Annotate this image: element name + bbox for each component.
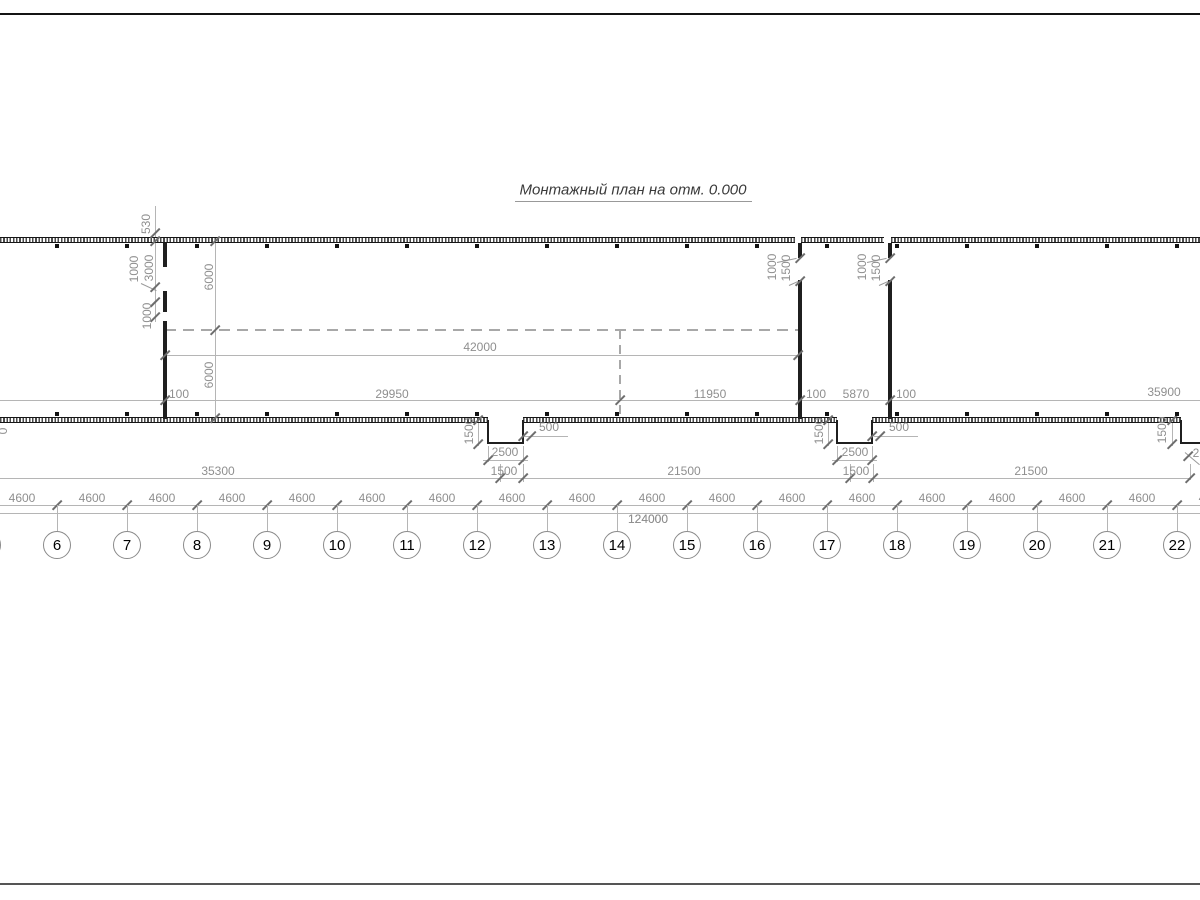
- grid-spacing-label: 4600: [149, 492, 176, 504]
- wall-segment: [871, 420, 873, 444]
- column-mark: [1175, 244, 1179, 248]
- wall-segment: [1180, 442, 1200, 444]
- axis-bubble: 10: [323, 531, 351, 559]
- grid-spacing-label: 4600: [709, 492, 736, 504]
- column-mark: [1035, 244, 1039, 248]
- axis-bubble-partial: [0, 531, 1, 559]
- dim-line: [0, 505, 1200, 506]
- axis-bubble: 22: [1163, 531, 1191, 559]
- column-mark: [545, 412, 549, 416]
- dim-label: 1500: [463, 418, 475, 445]
- dim-label: 100: [896, 388, 916, 400]
- grid-spacing-label: 4600: [429, 492, 456, 504]
- column-mark: [55, 412, 59, 416]
- wall-segment: [163, 291, 167, 312]
- axis-extension-line: [477, 505, 478, 531]
- dim-line: [165, 355, 798, 356]
- column-mark: [755, 412, 759, 416]
- column-mark: [895, 412, 899, 416]
- dim-label: 29950: [375, 388, 408, 400]
- axis-extension-line: [57, 505, 58, 531]
- wall-segment: [836, 442, 873, 444]
- column-mark: [895, 244, 899, 248]
- column-mark: [265, 244, 269, 248]
- wall-band-bottom: [872, 417, 1181, 423]
- wall-segment: [163, 243, 167, 267]
- dim-label: 2500: [492, 446, 519, 458]
- grid-spacing-label: 4600: [499, 492, 526, 504]
- column-mark: [195, 412, 199, 416]
- wall-band-top: [0, 237, 795, 243]
- dim-label: 35900: [1147, 386, 1180, 398]
- dim-label: 42000: [463, 341, 496, 353]
- column-mark: [195, 244, 199, 248]
- axis-bubble: 14: [603, 531, 631, 559]
- grid-spacing-label: 4600: [1059, 492, 1086, 504]
- dim-label: 21500: [1014, 465, 1047, 477]
- column-mark: [965, 244, 969, 248]
- column-mark: [125, 244, 129, 248]
- grid-spacing-label: 4600: [79, 492, 106, 504]
- dim-line: [0, 883, 1200, 885]
- grid-spacing-label: 4600: [569, 492, 596, 504]
- dim-label: 1500: [843, 465, 870, 477]
- wall-segment: [1180, 420, 1182, 444]
- axis-extension-line: [1037, 505, 1038, 531]
- dim-label: 0: [0, 428, 9, 435]
- column-mark: [475, 412, 479, 416]
- axis-bubble: 20: [1023, 531, 1051, 559]
- grid-spacing-label: 4600: [359, 492, 386, 504]
- dim-label: 1000: [128, 256, 140, 283]
- column-mark: [685, 412, 689, 416]
- column-mark: [475, 244, 479, 248]
- axis-extension-line: [827, 505, 828, 531]
- wall-segment: [522, 420, 524, 444]
- dim-label: 35300: [201, 465, 234, 477]
- axis-bubble: 7: [113, 531, 141, 559]
- dashed-reference-line: [165, 329, 798, 331]
- dim-label: 1500: [870, 255, 882, 282]
- axis-bubble: 19: [953, 531, 981, 559]
- grid-spacing-label: 4600: [639, 492, 666, 504]
- axis-bubble: 18: [883, 531, 911, 559]
- grid-spacing-label: 4600: [219, 492, 246, 504]
- axis-extension-line: [267, 505, 268, 531]
- dim-label: 1500: [780, 255, 792, 282]
- dim-label: 100: [806, 388, 826, 400]
- column-mark: [825, 244, 829, 248]
- dim-label: 1500: [491, 465, 518, 477]
- column-mark: [615, 412, 619, 416]
- dim-label: 3000: [143, 255, 155, 282]
- dim-line: [0, 513, 1200, 514]
- dim-label: 11950: [694, 388, 726, 400]
- axis-extension-line: [757, 505, 758, 531]
- column-mark: [1175, 412, 1179, 416]
- axis-bubble: 13: [533, 531, 561, 559]
- grid-spacing-label: 4600: [849, 492, 876, 504]
- column-mark: [335, 244, 339, 248]
- axis-bubble: 12: [463, 531, 491, 559]
- dim-label: 500: [889, 421, 909, 433]
- column-mark: [755, 244, 759, 248]
- axis-bubble: 16: [743, 531, 771, 559]
- dim-line: [0, 478, 1190, 479]
- grid-spacing-label: 4600: [989, 492, 1016, 504]
- column-mark: [825, 412, 829, 416]
- wall-segment: [836, 420, 838, 444]
- column-mark: [405, 412, 409, 416]
- grid-spacing-label: 4600: [289, 492, 316, 504]
- wall-band-top: [891, 237, 1200, 243]
- axis-extension-line: [407, 505, 408, 531]
- axis-extension-line: [897, 505, 898, 531]
- column-mark: [1035, 412, 1039, 416]
- column-mark: [55, 244, 59, 248]
- wall-segment: [487, 420, 489, 444]
- grid-spacing-label: 4600: [779, 492, 806, 504]
- column-mark: [335, 412, 339, 416]
- column-mark: [545, 244, 549, 248]
- axis-extension-line: [967, 505, 968, 531]
- axis-bubble: 9: [253, 531, 281, 559]
- grid-spacing-label: 4600: [1129, 492, 1156, 504]
- axis-extension-line: [127, 505, 128, 531]
- axis-bubble: 8: [183, 531, 211, 559]
- axis-bubble: 17: [813, 531, 841, 559]
- column-mark: [685, 244, 689, 248]
- dim-label: 6000: [203, 362, 215, 389]
- dim-label: 124000: [628, 513, 668, 525]
- axis-extension-line: [547, 505, 548, 531]
- axis-bubble: 11: [393, 531, 421, 559]
- column-mark: [965, 412, 969, 416]
- axis-extension-line: [687, 505, 688, 531]
- dim-label: 1500: [1156, 417, 1168, 444]
- dim-label: 1000: [766, 254, 778, 281]
- wall-segment: [487, 442, 524, 444]
- column-mark: [1105, 244, 1109, 248]
- wall-band-top: [801, 237, 884, 243]
- dim-label: 5870: [843, 388, 870, 400]
- dim-label: 530: [140, 214, 152, 234]
- dim-line: [0, 13, 1200, 15]
- axis-bubble: 6: [43, 531, 71, 559]
- wall-band-bottom: [0, 417, 488, 423]
- dim-label: 500: [539, 421, 559, 433]
- column-mark: [615, 244, 619, 248]
- dim-label: 1500: [813, 418, 825, 445]
- axis-extension-line: [617, 505, 618, 531]
- drawing-title: Монтажный план на отм. 0.000: [520, 182, 747, 199]
- dim-label: 2: [1193, 447, 1200, 459]
- column-mark: [265, 412, 269, 416]
- dim-label: 21500: [667, 465, 700, 477]
- column-mark: [405, 244, 409, 248]
- axis-extension-line: [197, 505, 198, 531]
- grid-spacing-label: 4600: [919, 492, 946, 504]
- wall-segment: [163, 321, 167, 419]
- grid-spacing-label: 4600: [9, 492, 36, 504]
- dim-line: [515, 201, 752, 202]
- axis-extension-line: [1177, 505, 1178, 531]
- axis-extension-line: [337, 505, 338, 531]
- dim-label: 100: [169, 388, 189, 400]
- dim-label: 2500: [842, 446, 869, 458]
- column-mark: [1105, 412, 1109, 416]
- column-mark: [125, 412, 129, 416]
- dim-label: 1000: [856, 254, 868, 281]
- dim-label: 6000: [203, 264, 215, 291]
- axis-bubble: 21: [1093, 531, 1121, 559]
- dim-label: 1000: [141, 303, 153, 330]
- wall-band-bottom: [523, 417, 837, 423]
- axis-extension-line: [1107, 505, 1108, 531]
- axis-bubble: 15: [673, 531, 701, 559]
- plan-canvas: Монтажный план на отм. 0.000 67891011121…: [0, 0, 1200, 900]
